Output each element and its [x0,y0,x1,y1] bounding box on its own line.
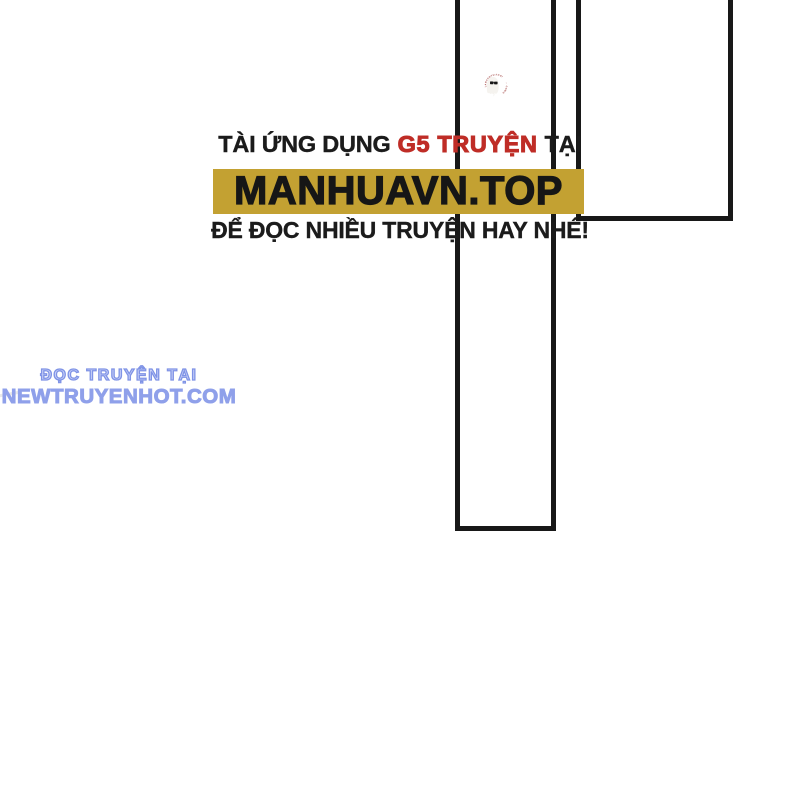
site-watermark-tagline: ĐỌC TRUYỆN TẠI [0,367,244,385]
site-watermark: ĐỌC TRUYỆN TẠI NEWTRUYENHOT.COM [0,367,244,408]
manhuavn-banner-text: MANHUAVN.TOP [234,169,563,214]
comic-page: TÀI ỨNG DỤNG G5 TRUYỆN TẠI MANHUAVN.TOP … [0,0,800,800]
manhuavn-banner: MANHUAVN.TOP [213,169,584,214]
ghost-mascot-logo: LAMCHOVUITHOI ▪▪ COMIC [480,25,610,150]
app-watermark-line3: ĐỂ ĐỌC NHIỀU TRUYỆN HAY NHÉ! [150,217,650,244]
arc-glasses-separator-icon: ▪▪ [505,83,507,85]
arc-text-comic: COMIC [501,86,507,94]
site-watermark-domain: NEWTRUYENHOT.COM [0,386,244,409]
app-watermark-line1-prefix: TÀI ỨNG DỤNG [218,131,390,158]
